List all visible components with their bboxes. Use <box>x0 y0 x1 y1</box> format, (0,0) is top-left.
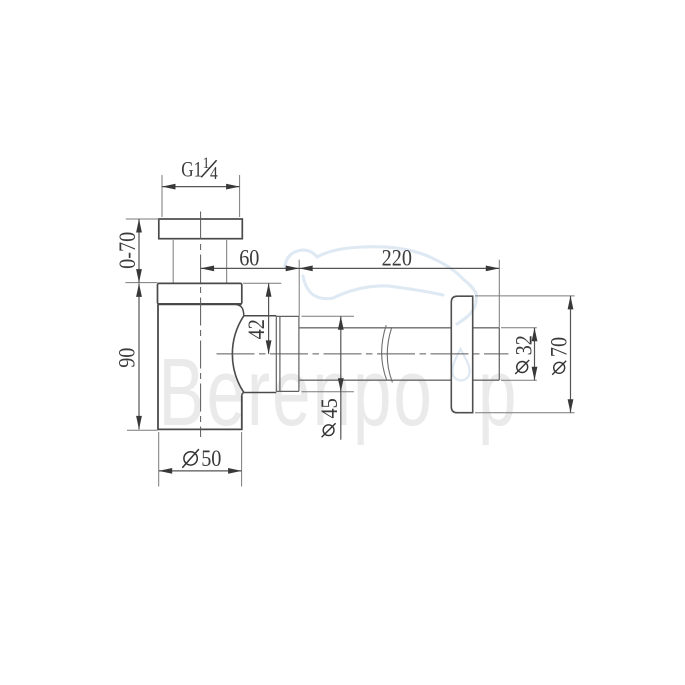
svg-text:32: 32 <box>510 335 537 355</box>
svg-text:0-70: 0-70 <box>113 232 140 269</box>
svg-text:90: 90 <box>113 348 140 368</box>
svg-text:60: 60 <box>239 244 259 271</box>
svg-text:42: 42 <box>242 319 269 339</box>
svg-text:220: 220 <box>382 244 412 271</box>
svg-text:70: 70 <box>545 337 572 357</box>
svg-text:45: 45 <box>316 398 343 418</box>
svg-text:50: 50 <box>201 444 221 471</box>
svg-text:G1: G1 <box>181 157 202 182</box>
